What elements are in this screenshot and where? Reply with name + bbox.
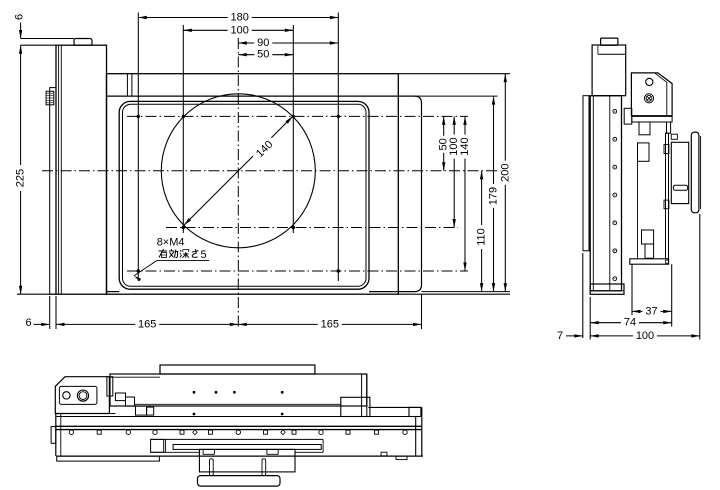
- svg-text:165: 165: [321, 318, 339, 330]
- svg-text:50: 50: [257, 49, 269, 61]
- svg-text:6: 6: [25, 317, 31, 329]
- svg-text:110: 110: [476, 228, 488, 246]
- svg-text:74: 74: [624, 317, 636, 329]
- svg-text:140: 140: [459, 137, 471, 155]
- svg-text:5: 5: [201, 249, 207, 261]
- svg-text:200: 200: [499, 164, 511, 182]
- svg-text:8×M4: 8×M4: [157, 237, 185, 249]
- svg-text:100: 100: [636, 330, 654, 342]
- svg-text:7: 7: [557, 330, 563, 342]
- svg-text:90: 90: [257, 37, 269, 49]
- svg-text:180: 180: [231, 12, 249, 24]
- svg-text:179: 179: [488, 187, 500, 205]
- svg-text:37: 37: [645, 305, 657, 317]
- svg-text:100: 100: [231, 24, 249, 36]
- svg-text:165: 165: [138, 318, 156, 330]
- svg-text:6: 6: [13, 14, 25, 20]
- svg-text:225: 225: [15, 169, 27, 187]
